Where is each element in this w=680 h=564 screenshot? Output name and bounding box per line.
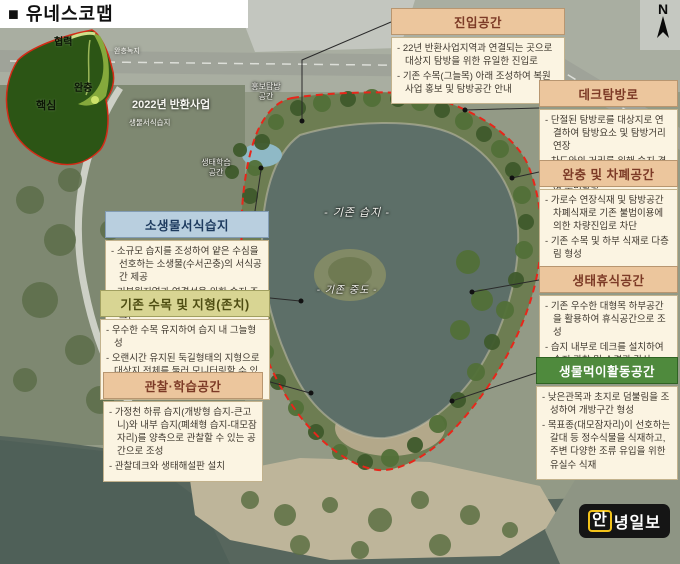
box-title: 생태휴식공간 bbox=[539, 266, 678, 293]
road-intersection bbox=[235, 0, 415, 52]
box-title: 생물먹이활동공간 bbox=[536, 357, 678, 384]
box-title: 관찰·학습공간 bbox=[103, 372, 263, 399]
watermark-first-char: 안 bbox=[588, 510, 612, 532]
masterplan-screenshot: ■ 유네스코맵 N 협력 완충 핵심 완충녹지 2022년 반환사업 생물서식습… bbox=[0, 0, 680, 564]
north-indicator: N bbox=[652, 2, 674, 47]
inset-zone-core-label: 핵심 bbox=[36, 97, 56, 113]
box-bullet: 기존 우수한 대형목 하부공간을 활용하여 휴식공간으로 조성 bbox=[545, 300, 672, 339]
news-watermark: 안 녕일보 bbox=[579, 504, 670, 538]
inset-buffer-green-label: 완충녹지 bbox=[114, 46, 140, 56]
inset-zone-coop-label: 협력 bbox=[54, 33, 72, 48]
annotation-box-buffer-screen: 완충 및 차폐공간 가로수 연장식재 및 탐방공간 차폐식재로 기존 불법이용에… bbox=[539, 160, 678, 270]
box-title: 소생물서식습지 bbox=[105, 211, 269, 238]
box-bullet: 가정천 하류 습지(개방형 습지-큰고니)와 내부 습지(폐쇄형 습지-대모잠자… bbox=[109, 406, 257, 458]
box-bullet: 낮은관목과 초지로 덤불림을 조성하여 개방구간 형성 bbox=[542, 391, 672, 417]
box-bullet: 기존 수목 및 하부 식재로 다층림 형성 bbox=[545, 235, 672, 261]
inset-project-label: 2022년 반환사업 bbox=[132, 96, 210, 112]
box-bullet: 관찰데크와 생태해설판 설치 bbox=[109, 460, 257, 473]
watermark-rest: 녕일보 bbox=[614, 509, 661, 533]
box-body: 가로수 연장식재 및 탐방공간 차폐식재로 기존 불법이용에 의한 차량진입로 … bbox=[539, 189, 678, 270]
inset-habitat-label: 생물서식습지 bbox=[129, 117, 170, 128]
inset-pond-dot bbox=[91, 96, 99, 104]
box-body: 낮은관목과 초지로 덤불림을 조성하여 개방구간 형성 목표종(대모잠자리)이 … bbox=[536, 386, 678, 480]
map-label-eco-learning: 생태학습 공간 bbox=[194, 158, 238, 178]
box-body: 가정천 하류 습지(개방형 습지-큰고니)와 내부 습지(폐쇄형 습지-대모잠자… bbox=[103, 401, 263, 482]
map-label-promo-tour: 홍보탐방 공간 bbox=[244, 82, 288, 102]
inset-zone-buffer-label: 완충 bbox=[74, 79, 92, 94]
map-label-existing-wetland: - 기존 습지 - bbox=[312, 204, 402, 220]
annotation-box-wildlife-food: 생물먹이활동공간 낮은관목과 초지로 덤불림을 조성하여 개방구간 형성 목표종… bbox=[536, 357, 678, 480]
box-bullet: 소규모 습지를 조성하여 얕은 수심을 선호하는 소생물(수서곤충)의 서식공간… bbox=[111, 245, 263, 284]
page-title: ■ 유네스코맵 bbox=[0, 0, 248, 28]
annotation-box-observe-learn: 관찰·학습공간 가정천 하류 습지(개방형 습지-큰고니)와 내부 습지(폐쇄형… bbox=[103, 372, 263, 482]
box-title: 데크탐방로 bbox=[539, 80, 678, 107]
north-label: N bbox=[652, 2, 674, 16]
box-bullet: 22년 반환사업지역과 연결되는 곳으로 대상지 탐방을 위한 유일한 진입로 bbox=[397, 42, 559, 68]
box-title: 기존 수목 및 지형(존치) bbox=[100, 290, 270, 317]
box-bullet: 단절된 탐방로를 대상지로 연결하여 탐방요소 및 탐방거리 연장 bbox=[545, 114, 672, 153]
map-label-existing-island: - 기존 중도 - bbox=[302, 281, 392, 296]
box-bullet: 가로수 연장식재 및 탐방공간 차폐식재로 기존 불법이용에 의한 차량진입로 … bbox=[545, 194, 672, 233]
box-title: 진입공간 bbox=[391, 8, 565, 35]
box-bullet: 목표종(대모잠자리)이 선호하는 갈대 등 정수식물을 식재하고, 주변 다양한… bbox=[542, 419, 672, 471]
box-bullet: 기존 수목(그늘목) 아래 조성하여 복원사업 홍보 및 탐방공간 안내 bbox=[397, 70, 559, 96]
box-title: 완충 및 차폐공간 bbox=[539, 160, 678, 187]
box-bullet: 우수한 수목 유지하여 습지 내 그늘형성 bbox=[106, 324, 264, 350]
north-arrow-icon bbox=[654, 16, 672, 42]
